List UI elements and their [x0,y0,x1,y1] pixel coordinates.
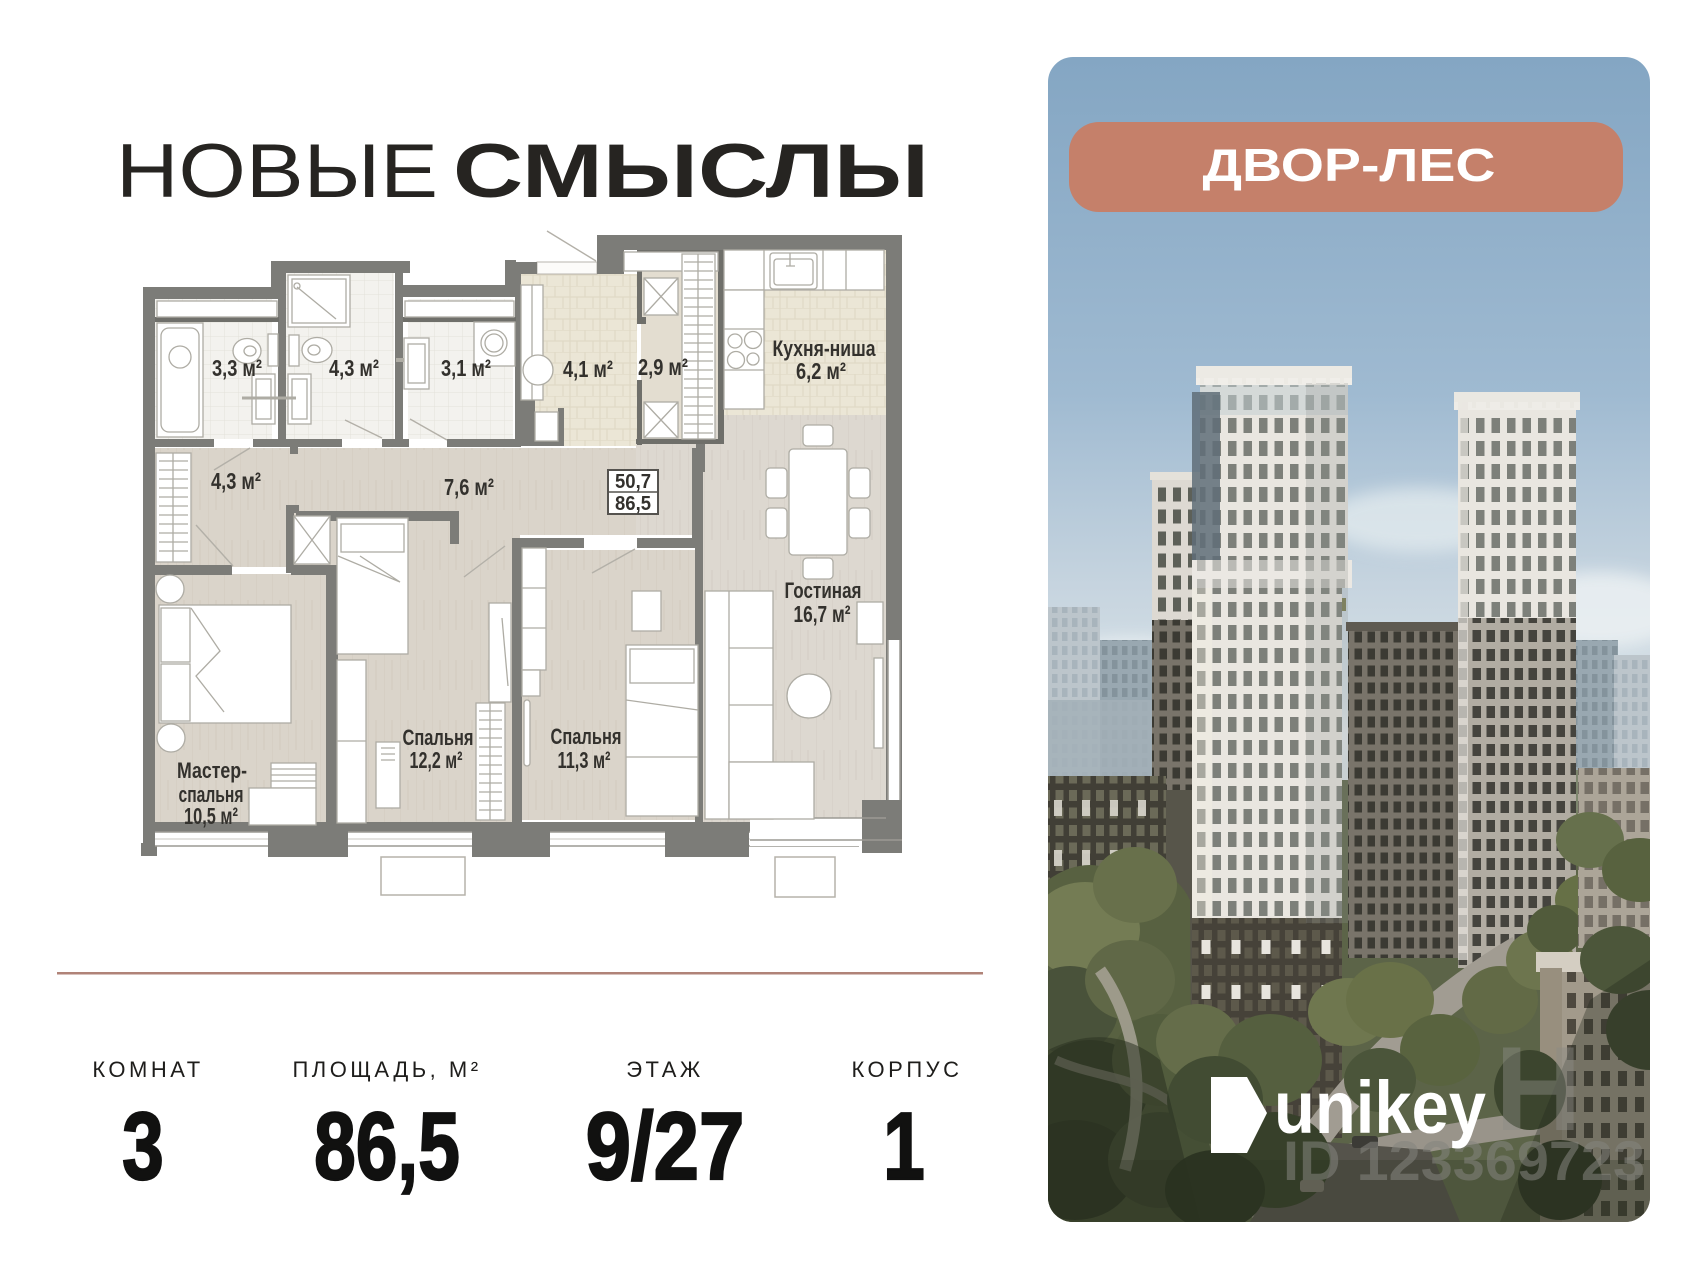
svg-text:ДВОР-ЛЕС: ДВОР-ЛЕС [1203,139,1496,191]
svg-text:16,7 м²: 16,7 м² [794,601,851,627]
svg-text:6,2 м²: 6,2 м² [796,358,846,384]
svg-text:11,3 м²: 11,3 м² [558,747,611,773]
svg-text:3,1 м²: 3,1 м² [441,355,491,381]
svg-text:4,1 м²: 4,1 м² [563,356,613,382]
svg-text:4,3 м²: 4,3 м² [329,355,379,381]
svg-text:3: 3 [122,1093,164,1200]
svg-text:12,2 м²: 12,2 м² [410,747,463,773]
svg-text:2,9 м²: 2,9 м² [638,354,688,380]
svg-text:9/27: 9/27 [586,1092,745,1200]
svg-text:10,5 м²: 10,5 м² [184,803,238,829]
svg-text:86,5: 86,5 [615,493,651,515]
svg-text:3,3 м²: 3,3 м² [212,355,262,381]
svg-text:4,3 м²: 4,3 м² [211,468,261,494]
svg-text:КОМНАТ: КОМНАТ [92,1057,203,1082]
svg-text:Мастер-: Мастер- [177,758,247,783]
svg-text:ЭТАЖ: ЭТАЖ [626,1057,704,1082]
svg-text:unikey: unikey [1274,1066,1486,1149]
svg-text:НОВЫЕ: НОВЫЕ [116,129,438,214]
svg-text:7,6 м²: 7,6 м² [444,474,494,500]
svg-text:ПЛОЩАДЬ, М²: ПЛОЩАДЬ, М² [292,1057,481,1082]
svg-text:КОРПУС: КОРПУС [851,1057,962,1082]
svg-text:1: 1 [883,1093,925,1200]
svg-text:Гостиная: Гостиная [785,578,862,603]
svg-text:86,5: 86,5 [314,1093,460,1200]
svg-text:СМЫСЛЫ: СМЫСЛЫ [453,129,929,214]
svg-text:Спальня: Спальня [551,724,622,749]
svg-text:50,7: 50,7 [615,471,651,493]
